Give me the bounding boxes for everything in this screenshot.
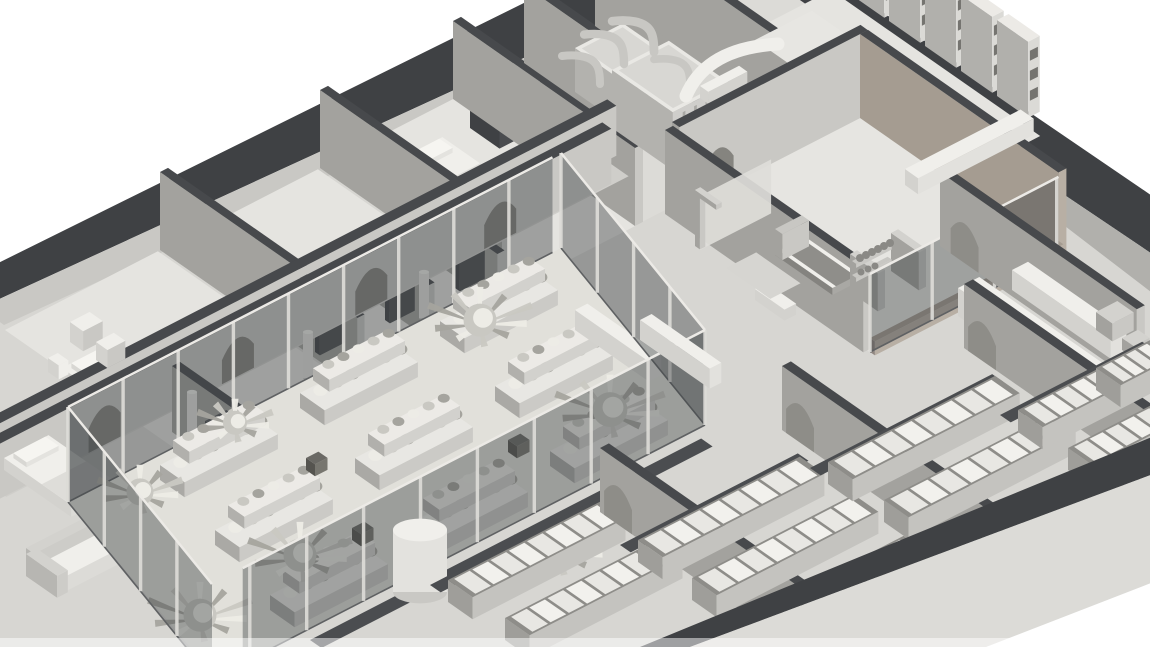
- dumbbell-6: [886, 239, 894, 247]
- dumbbell-8: [865, 266, 872, 273]
- isometric-floorplan-render: [0, 0, 1150, 647]
- dumbbell-7: [858, 269, 865, 276]
- bottom-edge-fade: [0, 638, 1150, 647]
- dumbbell-9: [872, 263, 879, 270]
- render-stage: [0, 0, 1150, 647]
